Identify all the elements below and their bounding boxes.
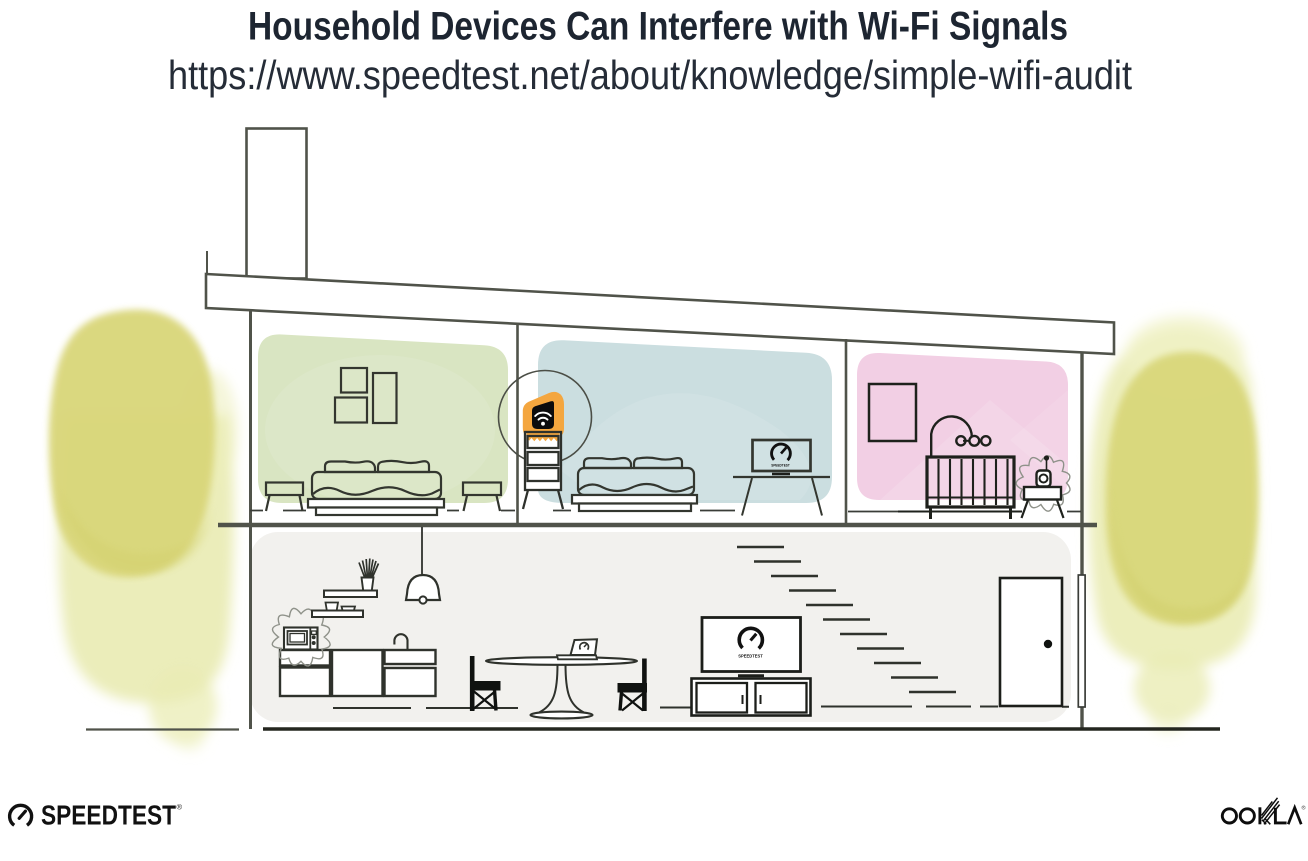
svg-text:SPEEDTEST: SPEEDTEST xyxy=(771,462,790,467)
svg-text:https://www.speedtest.net/abou: https://www.speedtest.net/about/knowledg… xyxy=(168,52,1133,98)
svg-text:SPEEDTEST: SPEEDTEST xyxy=(738,653,763,658)
svg-text:®: ® xyxy=(177,803,183,812)
svg-text:Household Devices Can Interfer: Household Devices Can Interfere with Wi-… xyxy=(248,5,1068,49)
svg-text:®: ® xyxy=(1302,805,1306,812)
svg-text:SPEEDTEST: SPEEDTEST xyxy=(41,800,176,831)
